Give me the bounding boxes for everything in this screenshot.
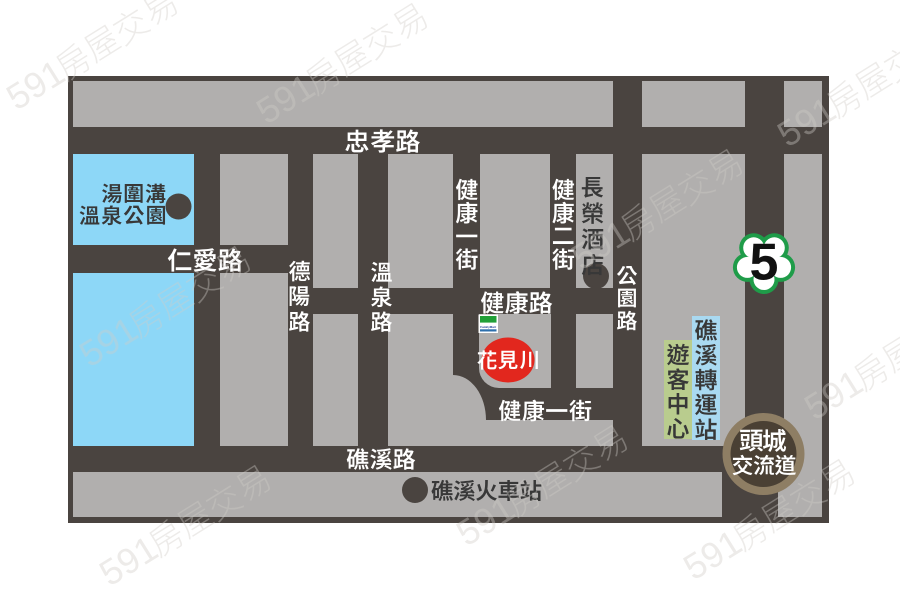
svg-text:FamilyMart: FamilyMart (480, 325, 496, 329)
svg-text:5: 5 (750, 234, 779, 292)
